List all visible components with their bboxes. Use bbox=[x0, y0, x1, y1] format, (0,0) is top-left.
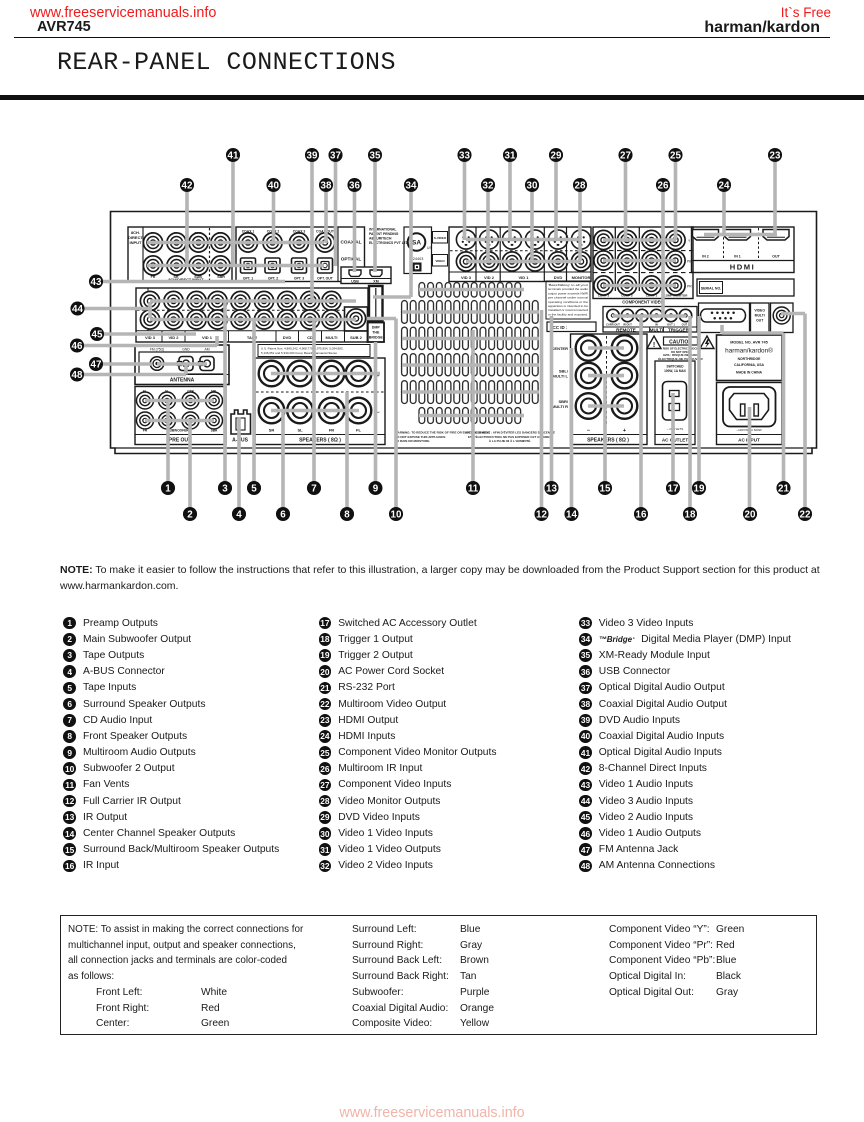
svg-text:SL: SL bbox=[297, 428, 303, 433]
svg-text:VIDEO: VIDEO bbox=[754, 309, 765, 313]
svg-text:SBR: SBR bbox=[217, 275, 225, 279]
svg-text:MULTI L: MULTI L bbox=[553, 374, 569, 379]
svg-text:DVD: DVD bbox=[554, 275, 563, 280]
svg-text:COMP 1: COMP 1 bbox=[646, 294, 658, 298]
svg-text:1: 1 bbox=[165, 483, 171, 494]
svg-text:3: 3 bbox=[222, 483, 228, 494]
svg-text:FR: FR bbox=[143, 429, 148, 433]
svg-text:FR: FR bbox=[329, 428, 334, 433]
svg-text:AM: AM bbox=[204, 348, 209, 352]
svg-text:DMP: DMP bbox=[372, 326, 381, 330]
svg-text:SPEAKERS ( 8Ω ): SPEAKERS ( 8Ω ) bbox=[587, 438, 629, 444]
svg-text:in the facility and exposed.: in the facility and exposed. bbox=[548, 312, 588, 316]
svg-text:28: 28 bbox=[575, 180, 586, 191]
svg-text:US: US bbox=[427, 246, 432, 250]
svg-text:AC OUTLET: AC OUTLET bbox=[662, 438, 688, 443]
svg-text:operating conditions or the: operating conditions or the bbox=[548, 300, 589, 304]
svg-text:SA: SA bbox=[412, 240, 421, 247]
svg-text:43: 43 bbox=[91, 277, 102, 288]
svg-text:COAXIAL: COAXIAL bbox=[340, 240, 361, 245]
svg-text:MULTI R: MULTI R bbox=[552, 404, 568, 409]
svg-text:16: 16 bbox=[636, 509, 647, 520]
svg-text:FR: FR bbox=[151, 275, 156, 279]
svg-text:2: 2 bbox=[187, 509, 193, 520]
svg-text:19: 19 bbox=[694, 483, 705, 494]
svg-text:7: 7 bbox=[311, 483, 317, 494]
svg-text:39: 39 bbox=[307, 150, 318, 161]
svg-text:23: 23 bbox=[770, 150, 781, 161]
svg-text:OPT. 3: OPT. 3 bbox=[294, 277, 304, 281]
svg-text:13: 13 bbox=[546, 483, 557, 494]
svg-text:ÉLECTRIQUE–NE PAS OUVRIR: ÉLECTRIQUE–NE PAS OUVRIR bbox=[658, 356, 703, 361]
svg-text:12: 12 bbox=[536, 509, 547, 520]
svg-text:XM: XM bbox=[373, 280, 378, 284]
svg-text:FL: FL bbox=[356, 428, 361, 433]
svg-text:MULTI: MULTI bbox=[650, 327, 664, 332]
svg-text:OPT. OUT: OPT. OUT bbox=[317, 277, 334, 281]
svg-text:COMP MONITOR: COMP MONITOR bbox=[664, 294, 689, 298]
svg-text:terminals provided the audio: terminals provided the audio bbox=[548, 287, 589, 291]
svg-text:PR: PR bbox=[687, 285, 692, 289]
svg-text:MULTI: MULTI bbox=[755, 314, 765, 318]
svg-text:41: 41 bbox=[228, 150, 239, 161]
svg-text:NORTHRIDGE: NORTHRIDGE bbox=[738, 357, 762, 361]
svg-text:33: 33 bbox=[459, 150, 470, 161]
svg-text:THE: THE bbox=[372, 331, 380, 335]
svg-text:installed or interconnected: installed or interconnected bbox=[548, 308, 589, 312]
svg-text:15: 15 bbox=[600, 483, 611, 494]
svg-text:8: 8 bbox=[344, 509, 350, 520]
svg-text:COMPONENT VIDEO: COMPONENT VIDEO bbox=[622, 300, 664, 305]
svg-text:VID 1: VID 1 bbox=[202, 335, 213, 340]
svg-text:14: 14 bbox=[566, 509, 577, 520]
svg-text:USB: USB bbox=[351, 280, 359, 284]
svg-text:MADE IN CHINA: MADE IN CHINA bbox=[736, 371, 763, 375]
svg-text:42: 42 bbox=[182, 180, 193, 191]
svg-text:!: ! bbox=[653, 342, 655, 349]
svg-text:21: 21 bbox=[778, 483, 789, 494]
svg-text:−: − bbox=[587, 428, 591, 434]
svg-text:SPEAKERS ( 8Ω ): SPEAKERS ( 8Ω ) bbox=[299, 438, 341, 444]
svg-text:À LA PLUIE NI À LʼHUMIDITÉ.: À LA PLUIE NI À LʼHUMIDITÉ. bbox=[489, 438, 531, 443]
svg-text:VID 3: VID 3 bbox=[461, 275, 472, 280]
svg-text:CD: CD bbox=[307, 335, 313, 340]
svg-text:REMOTE: REMOTE bbox=[616, 327, 636, 332]
svg-text:GND: GND bbox=[182, 348, 190, 352]
svg-text:40: 40 bbox=[268, 180, 279, 191]
svg-text:TAPE: TAPE bbox=[247, 335, 258, 340]
svg-text:~ OUTLETS: ~ OUTLETS bbox=[667, 427, 683, 431]
svg-text:9: 9 bbox=[373, 483, 379, 494]
svg-text:PRE OUT: PRE OUT bbox=[169, 438, 191, 444]
svg-text:11: 11 bbox=[468, 483, 479, 494]
svg-text:COMP 2: COMP 2 bbox=[621, 294, 633, 298]
svg-text:5,136,651 and 5,333,200 Coop:: 5,136,651 and 5,333,200 Coop: Bauck Tran… bbox=[261, 351, 337, 355]
svg-text:44: 44 bbox=[72, 304, 83, 315]
svg-text:CALIFORNIA, USA: CALIFORNIA, USA bbox=[734, 363, 765, 367]
svg-text:29: 29 bbox=[551, 150, 562, 161]
svg-text:IN 2: IN 2 bbox=[702, 255, 709, 259]
svg-text:27: 27 bbox=[620, 150, 631, 161]
svg-text:FM (75Ω): FM (75Ω) bbox=[150, 348, 164, 352]
svg-text:22: 22 bbox=[800, 509, 811, 520]
svg-text:BRIDGE: BRIDGE bbox=[369, 336, 384, 340]
svg-text:38: 38 bbox=[321, 180, 332, 191]
svg-text:SR: SR bbox=[269, 428, 275, 433]
svg-text:S-VIDEO: S-VIDEO bbox=[434, 236, 447, 240]
svg-text:48: 48 bbox=[72, 370, 83, 381]
svg-text:DVD: DVD bbox=[283, 335, 292, 340]
svg-text:SUBWOOFER: SUBWOOFER bbox=[167, 429, 189, 433]
svg-text:VID 1: VID 1 bbox=[518, 275, 529, 280]
svg-text:MULTI: MULTI bbox=[326, 335, 338, 340]
svg-text:17: 17 bbox=[668, 483, 679, 494]
svg-text:SUB 2: SUB 2 bbox=[350, 335, 363, 340]
svg-text:SERIAL NO.: SERIAL NO. bbox=[701, 287, 722, 291]
svg-text:25: 25 bbox=[670, 150, 681, 161]
svg-text:ʼBassTalkingʼ to all your: ʼBassTalkingʼ to all your bbox=[548, 283, 588, 287]
svg-text:Y: Y bbox=[688, 239, 691, 243]
svg-text:26: 26 bbox=[658, 180, 669, 191]
svg-text:SWITCHED: SWITCHED bbox=[667, 365, 685, 369]
svg-text:OUT: OUT bbox=[772, 255, 780, 259]
svg-text:IN: IN bbox=[655, 323, 658, 327]
svg-text:4: 4 bbox=[236, 509, 242, 520]
svg-text:IR OUT: IR OUT bbox=[623, 323, 632, 327]
svg-text:100W, 1A MAX: 100W, 1A MAX bbox=[664, 369, 687, 373]
svg-text:ABBURITECH: ABBURITECH bbox=[369, 237, 392, 241]
svg-text:20: 20 bbox=[745, 509, 756, 520]
svg-text:output power exceeds NWR: output power exceeds NWR bbox=[548, 291, 588, 295]
svg-text:36: 36 bbox=[349, 180, 360, 191]
svg-text:SBR: SBR bbox=[211, 429, 218, 433]
svg-text:MODEL NO. AVR 745: MODEL NO. AVR 745 bbox=[730, 341, 768, 345]
svg-text:35: 35 bbox=[370, 150, 381, 161]
svg-text:45: 45 bbox=[92, 329, 103, 340]
svg-text:34: 34 bbox=[406, 180, 417, 191]
svg-text:per channel under normal: per channel under normal bbox=[548, 296, 589, 300]
svg-text:CARR OUT: CARR OUT bbox=[606, 323, 620, 327]
svg-text:COMP 3: COMP 3 bbox=[598, 294, 610, 298]
svg-text:ET DʼÉLECTROCUTION, NE PAS EXP: ET DʼÉLECTROCUTION, NE PAS EXPOSER CET A… bbox=[468, 434, 552, 439]
svg-text:+: + bbox=[623, 428, 627, 434]
svg-text:IN 1: IN 1 bbox=[734, 255, 741, 259]
svg-text:apparatus is intended to be: apparatus is intended to be bbox=[548, 304, 589, 308]
svg-text:MONITOR: MONITOR bbox=[572, 275, 591, 280]
svg-text:U.S. Patent Nos. 4,890,242, 4: U.S. Patent Nos. 4,890,242, 4,908,779, 4… bbox=[261, 347, 344, 351]
svg-text:5: 5 bbox=[251, 483, 257, 494]
svg-text:6: 6 bbox=[280, 509, 286, 520]
svg-text:10: 10 bbox=[391, 509, 402, 520]
svg-text:OUT: OUT bbox=[756, 319, 764, 323]
svg-text:46: 46 bbox=[72, 341, 83, 352]
svg-text:HDMI: HDMI bbox=[730, 263, 755, 272]
svg-text:TO RAIN OR MOISTURE.: TO RAIN OR MOISTURE. bbox=[395, 439, 430, 443]
svg-text:32: 32 bbox=[483, 180, 494, 191]
svg-text:OUT 1: OUT 1 bbox=[667, 323, 675, 327]
svg-text:VIDEO: VIDEO bbox=[435, 259, 445, 263]
svg-text:VID 2: VID 2 bbox=[484, 275, 495, 280]
svg-text:INTERNATIONAL: INTERNATIONAL bbox=[369, 228, 396, 232]
svg-text:31: 31 bbox=[505, 150, 516, 161]
svg-text:INPUT: INPUT bbox=[130, 240, 143, 245]
svg-text:CENTER: CENTER bbox=[552, 346, 569, 351]
svg-text:RISK OF ELECTRIC SHOCK: RISK OF ELECTRIC SHOCK bbox=[663, 347, 699, 351]
svg-text:OPTICAL: OPTICAL bbox=[341, 257, 362, 262]
svg-text:ANTENNA: ANTENNA bbox=[170, 378, 195, 384]
svg-text:30: 30 bbox=[527, 180, 538, 191]
svg-text:harman/kardon®: harman/kardon® bbox=[725, 347, 773, 355]
svg-text:37: 37 bbox=[330, 150, 341, 161]
svg-text:24: 24 bbox=[719, 180, 730, 191]
svg-text:18: 18 bbox=[685, 509, 696, 520]
svg-text:47: 47 bbox=[91, 359, 102, 370]
